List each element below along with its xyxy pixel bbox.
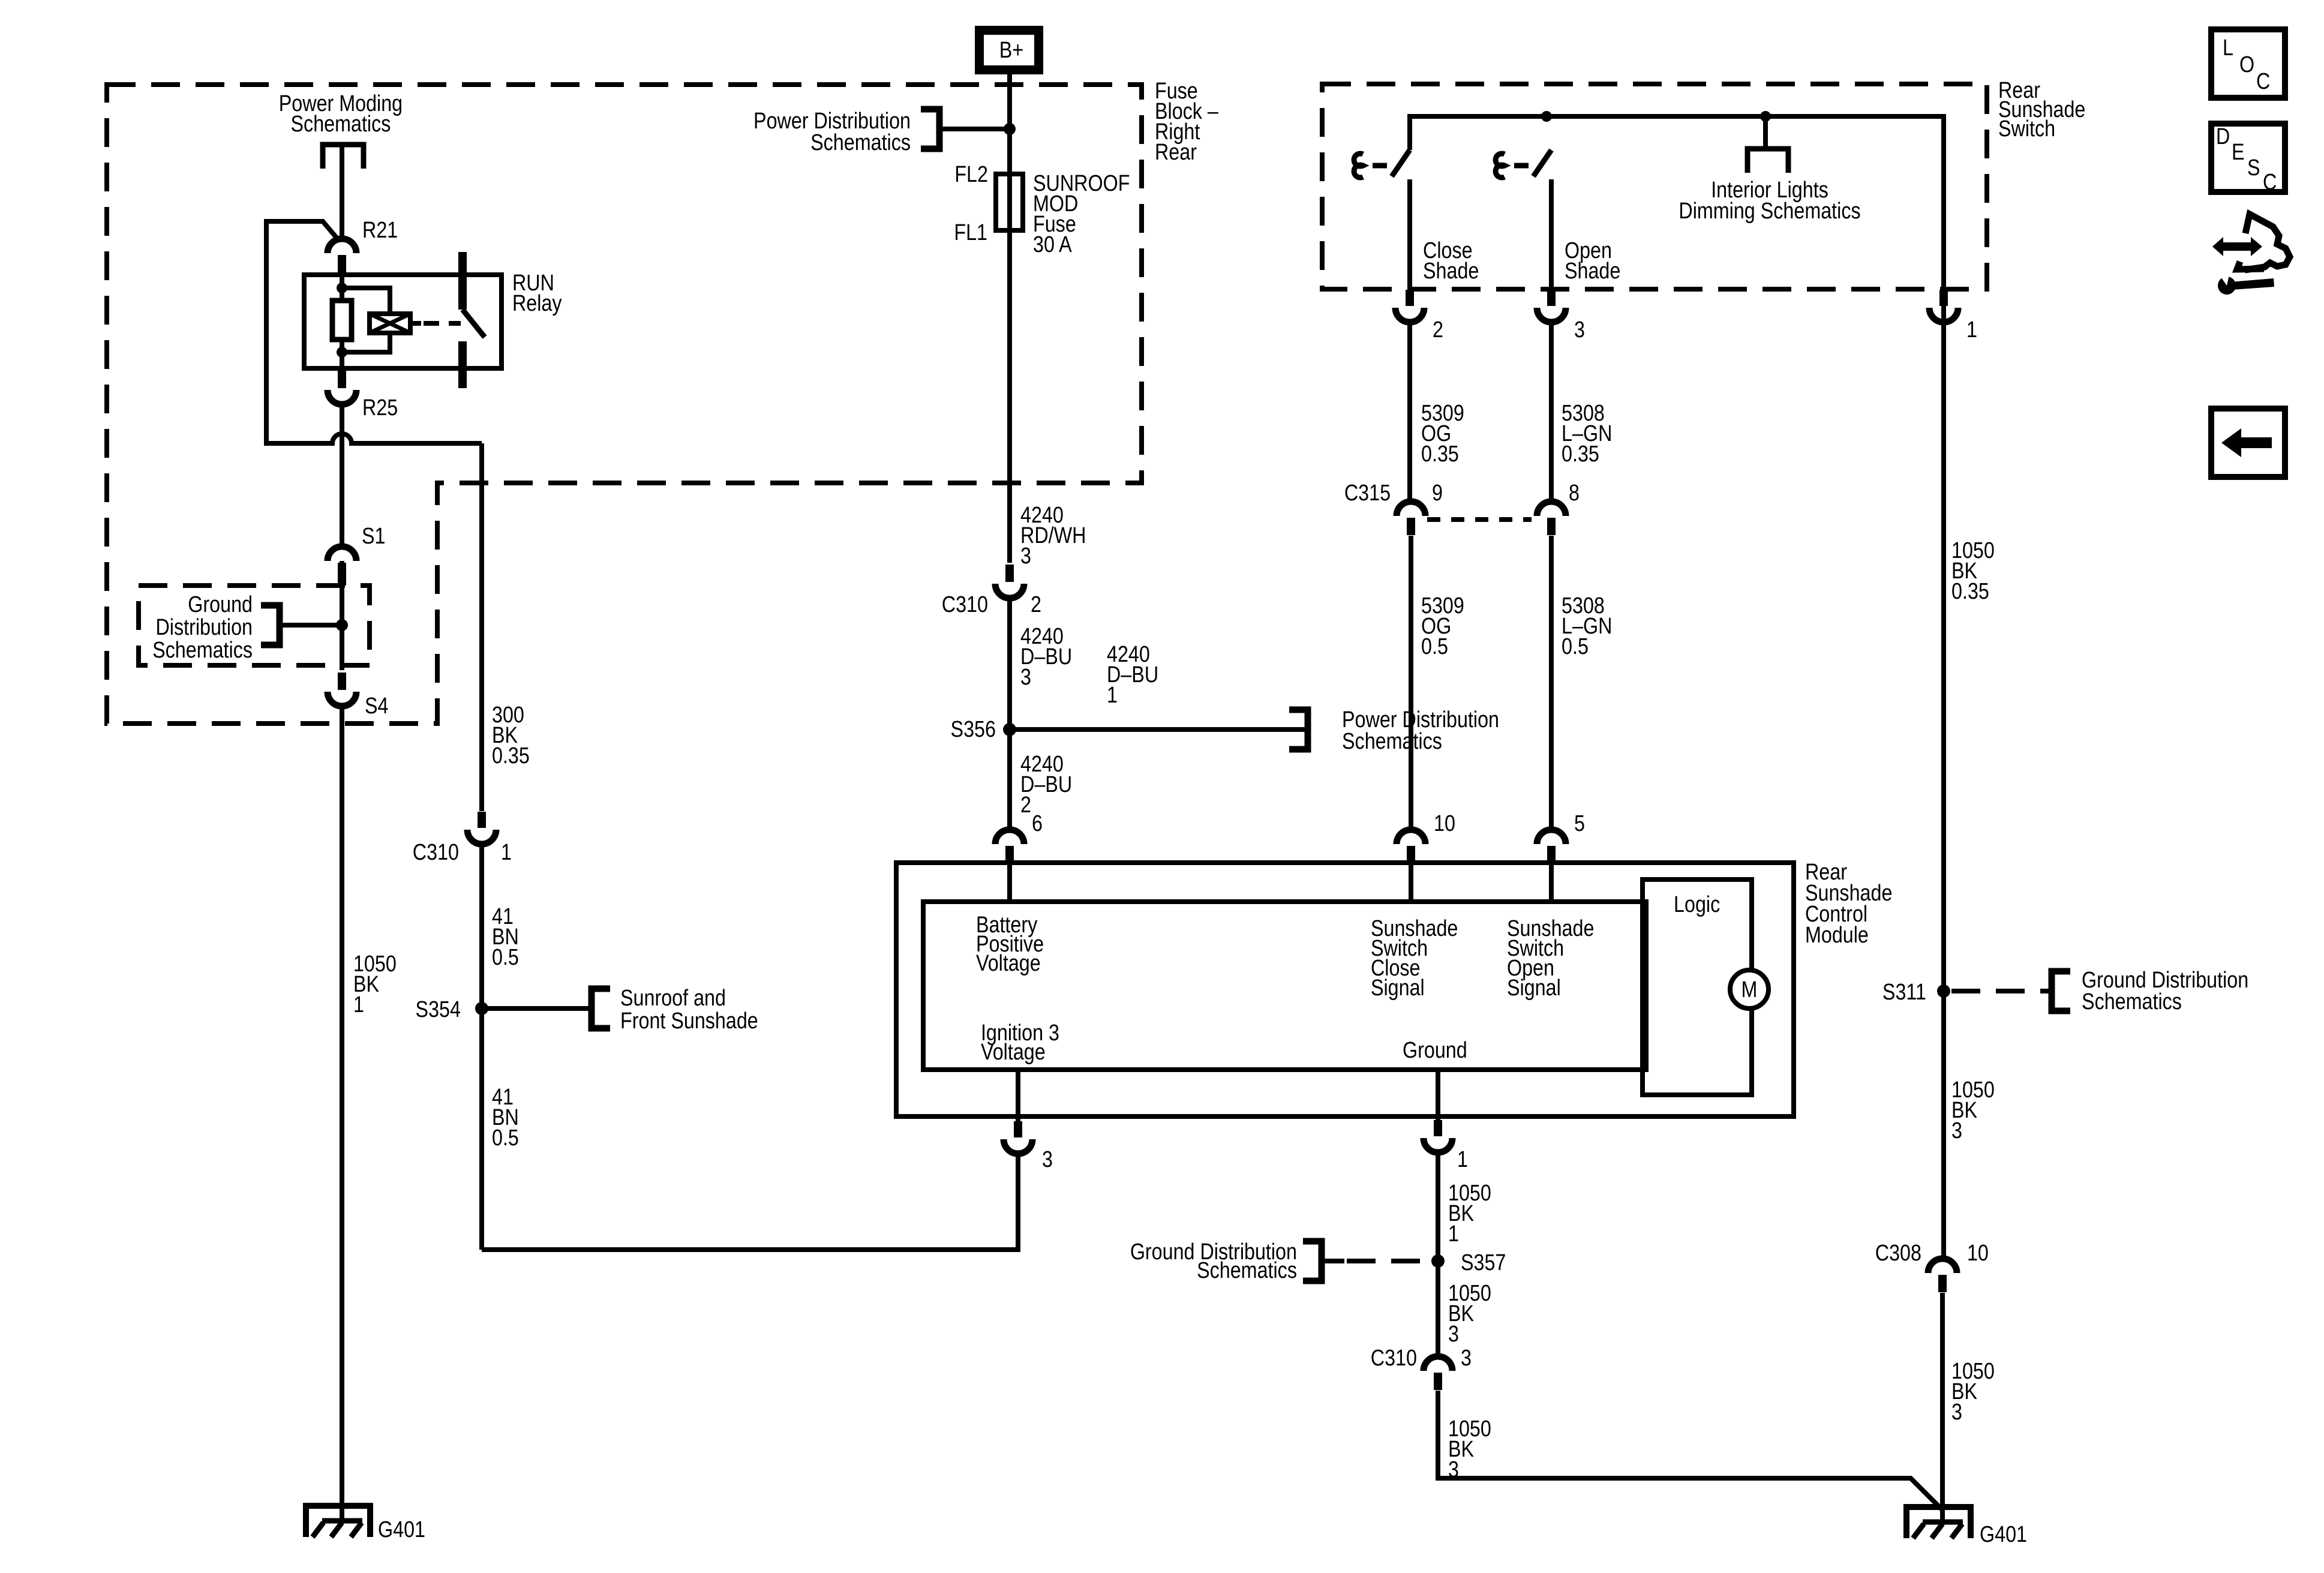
svg-text:Dimming Schematics: Dimming Schematics	[1679, 199, 1860, 224]
svg-text:Shade: Shade	[1423, 259, 1479, 284]
svg-text:S354: S354	[416, 997, 461, 1022]
svg-text:Sunroof and: Sunroof and	[620, 986, 726, 1011]
svg-text:Schematics: Schematics	[810, 130, 911, 155]
svg-text:5: 5	[1574, 811, 1585, 836]
svg-text:0.5: 0.5	[1562, 634, 1589, 659]
svg-text:C310: C310	[1371, 1346, 1417, 1371]
svg-text:6: 6	[1032, 811, 1043, 836]
svg-text:M: M	[1742, 977, 1758, 1002]
svg-text:3: 3	[1042, 1147, 1053, 1172]
svg-text:0.5: 0.5	[1421, 634, 1448, 659]
svg-text:S356: S356	[951, 717, 996, 742]
svg-text:3: 3	[1951, 1400, 1962, 1425]
svg-text:Relay: Relay	[512, 291, 562, 316]
svg-text:C310: C310	[942, 592, 988, 617]
svg-text:C315: C315	[1344, 481, 1391, 506]
svg-text:Schematics: Schematics	[1197, 1258, 1297, 1283]
svg-text:S4: S4	[365, 694, 388, 719]
svg-text:Distribution: Distribution	[156, 615, 253, 640]
svg-text:3: 3	[1574, 317, 1585, 343]
svg-text:Ground: Ground	[1403, 1038, 1467, 1063]
svg-text:S357: S357	[1461, 1250, 1506, 1275]
svg-text:D: D	[2216, 124, 2230, 149]
svg-text:3: 3	[1461, 1346, 1472, 1371]
svg-text:R21: R21	[362, 218, 398, 243]
svg-text:Module: Module	[1805, 923, 1869, 948]
svg-text:1: 1	[1966, 317, 1977, 343]
svg-text:G401: G401	[378, 1517, 425, 1542]
svg-text:Ground: Ground	[188, 592, 253, 617]
svg-text:0.35: 0.35	[492, 743, 530, 769]
svg-text:3: 3	[1020, 544, 1031, 569]
svg-text:3: 3	[1448, 1322, 1459, 1347]
svg-text:Voltage: Voltage	[981, 1040, 1046, 1065]
svg-text:2: 2	[1031, 592, 1041, 617]
svg-text:C: C	[2263, 170, 2277, 195]
svg-text:1: 1	[1107, 683, 1118, 708]
svg-text:Rear: Rear	[1155, 140, 1197, 165]
svg-text:0.35: 0.35	[1421, 442, 1459, 467]
svg-text:10: 10	[1967, 1241, 1989, 1266]
svg-text:0.5: 0.5	[492, 1125, 519, 1151]
svg-text:S311: S311	[1882, 980, 1926, 1005]
svg-text:S1: S1	[362, 524, 385, 549]
svg-text:C308: C308	[1875, 1241, 1921, 1266]
svg-text:2: 2	[1433, 317, 1443, 343]
svg-text:R25: R25	[362, 395, 398, 421]
svg-text:2: 2	[1020, 792, 1031, 818]
svg-text:Shade: Shade	[1565, 259, 1620, 284]
svg-text:Schematics: Schematics	[2082, 989, 2182, 1014]
svg-text:30 A: 30 A	[1033, 232, 1072, 257]
svg-text:L: L	[2223, 35, 2233, 61]
svg-text:1: 1	[501, 840, 512, 865]
svg-text:G401: G401	[1980, 1522, 2027, 1547]
svg-text:Voltage: Voltage	[976, 951, 1041, 976]
svg-text:0.35: 0.35	[1951, 579, 1989, 604]
svg-text:8: 8	[1569, 481, 1580, 506]
svg-text:Signal: Signal	[1507, 975, 1561, 1001]
svg-text:9: 9	[1432, 481, 1443, 506]
svg-text:E: E	[2232, 140, 2245, 165]
svg-text:0.35: 0.35	[1562, 442, 1599, 467]
svg-text:Logic: Logic	[1674, 892, 1720, 917]
svg-text:FL2: FL2	[954, 162, 988, 187]
svg-text:Schematics: Schematics	[291, 112, 391, 137]
svg-text:1: 1	[1457, 1147, 1468, 1172]
svg-text:Switch: Switch	[1998, 116, 2055, 142]
svg-text:O: O	[2239, 52, 2254, 77]
svg-text:B+: B+	[999, 38, 1023, 63]
svg-text:C310: C310	[413, 840, 459, 865]
svg-text:0.5: 0.5	[492, 945, 519, 970]
svg-text:Schematics: Schematics	[152, 638, 253, 663]
svg-text:Schematics: Schematics	[1342, 729, 1442, 754]
svg-text:1: 1	[353, 992, 364, 1017]
svg-text:Signal: Signal	[1371, 975, 1425, 1001]
svg-text:3: 3	[1020, 665, 1031, 690]
svg-text:Front Sunshade: Front Sunshade	[620, 1008, 758, 1034]
svg-text:3: 3	[1951, 1118, 1962, 1143]
svg-text:C: C	[2256, 69, 2270, 94]
svg-text:3: 3	[1448, 1457, 1459, 1482]
svg-text:10: 10	[1434, 811, 1455, 836]
svg-text:1: 1	[1448, 1221, 1459, 1247]
svg-text:S: S	[2247, 155, 2260, 181]
svg-text:FL1: FL1	[954, 220, 987, 245]
